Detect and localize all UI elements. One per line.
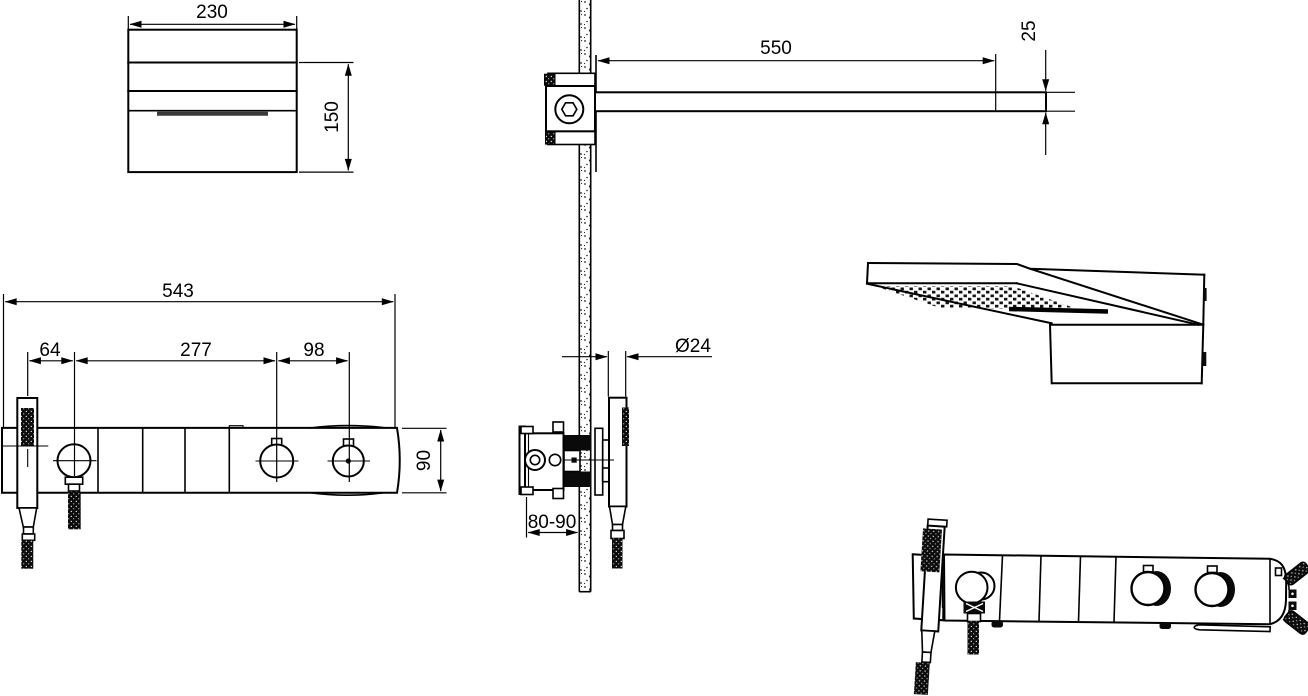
- hose-nut-upper: [65, 477, 82, 484]
- foot-right: [1160, 623, 1172, 630]
- mount-screw-upper: [1203, 288, 1207, 301]
- rough-in-valve: [520, 422, 564, 499]
- wall-lower: [579, 145, 590, 592]
- wand-neck: [24, 527, 34, 534]
- wand-persp-taper: [920, 630, 934, 652]
- dim-80-90: 80-90: [527, 497, 578, 538]
- panel-perspective-view: [913, 519, 1308, 696]
- foot-left: [992, 621, 1004, 628]
- wall-mount-box: [1050, 325, 1203, 384]
- knob-face-1: [1132, 572, 1165, 605]
- dim-25: 25: [1019, 20, 1075, 155]
- hose-front: [68, 492, 81, 530]
- panel-front-view: 543 64 277 98 90: [2, 281, 447, 569]
- wand-side-neck: [613, 525, 623, 531]
- dim-64: 64: [28, 340, 73, 396]
- dim-label-230: 230: [196, 2, 228, 23]
- arm-side-view: 550 25: [545, 20, 1076, 172]
- valve-side-view: 80-90 Ø24: [520, 336, 713, 569]
- wand-grip: [21, 408, 34, 446]
- wand-persp-grip: [920, 528, 942, 572]
- dim-label-543: 543: [162, 281, 194, 302]
- hose-nut-lower: [69, 484, 80, 491]
- valve-port-small: [549, 454, 560, 465]
- dim-label-277: 277: [180, 340, 212, 361]
- valve-tab-bl: [521, 487, 533, 495]
- knob-face: [956, 572, 988, 604]
- dim-label-150: 150: [322, 101, 343, 133]
- wand-persp-neck: [922, 652, 931, 663]
- knob-tab-persp-2: [1208, 566, 1218, 573]
- wand-side-nut: [611, 531, 624, 539]
- wall-upper: [579, 0, 590, 73]
- wand-persp-hose: [914, 662, 930, 695]
- dim-230: 230: [128, 2, 296, 29]
- wand-side-taper: [610, 507, 626, 525]
- head-perspective-view: [867, 263, 1207, 383]
- waterfall-slot-perspective: [1009, 309, 1108, 312]
- head-outline: [128, 30, 296, 172]
- mount-screw-lower: [1203, 352, 1207, 366]
- bracket-screw-top: [545, 74, 556, 85]
- head-top-edges: [868, 263, 1204, 275]
- shower-arm: [591, 92, 1046, 111]
- head-left-edge: [867, 263, 868, 283]
- wand-taper: [19, 508, 37, 527]
- arm-connector-circle: [555, 95, 583, 123]
- knob-face-2: [1196, 573, 1229, 606]
- valve-connector-top: [564, 435, 592, 451]
- wand-side-grip: [622, 408, 629, 447]
- dim-90: 90: [402, 428, 447, 493]
- valve-tab-tl: [521, 427, 533, 434]
- dim-label-98: 98: [303, 340, 324, 361]
- valve-port-outer: [525, 450, 545, 470]
- dim-label-64: 64: [39, 340, 61, 361]
- dim-label-80-90: 80-90: [528, 512, 577, 533]
- wand-nut: [22, 534, 34, 540]
- dim-150: 150: [299, 63, 354, 173]
- head-top-view: 230 150: [128, 2, 353, 172]
- bracket-screw-bottom: [546, 132, 556, 144]
- valve-tab-tr: [553, 422, 564, 432]
- dim-label-90: 90: [414, 450, 435, 471]
- dim-label-25: 25: [1019, 20, 1040, 41]
- wing-nut-lower: [1283, 609, 1308, 635]
- wand-hose: [21, 540, 33, 568]
- valve-tab-br: [553, 489, 564, 499]
- hose-perspective: [968, 622, 980, 655]
- far-diagonal-edge: [1030, 269, 1202, 325]
- valve-connector-bottom: [564, 472, 592, 488]
- bar-end-notch: [1276, 568, 1282, 576]
- bottom-lip: [1194, 625, 1270, 632]
- shower-installation-drawing: 230 150: [0, 0, 1308, 696]
- dim-label-o24: Ø24: [675, 336, 711, 357]
- technical-drawing-canvas: 230 150: [0, 0, 1308, 696]
- valve-escutcheon: [595, 428, 603, 495]
- wand-side-hose: [612, 539, 623, 569]
- hose-neck: [968, 614, 981, 622]
- arm-mounting-bracket: [545, 73, 596, 144]
- dim-label-550: 550: [760, 38, 792, 59]
- hand-shower-side: [609, 398, 629, 569]
- wing-nut-upper: [1283, 561, 1308, 586]
